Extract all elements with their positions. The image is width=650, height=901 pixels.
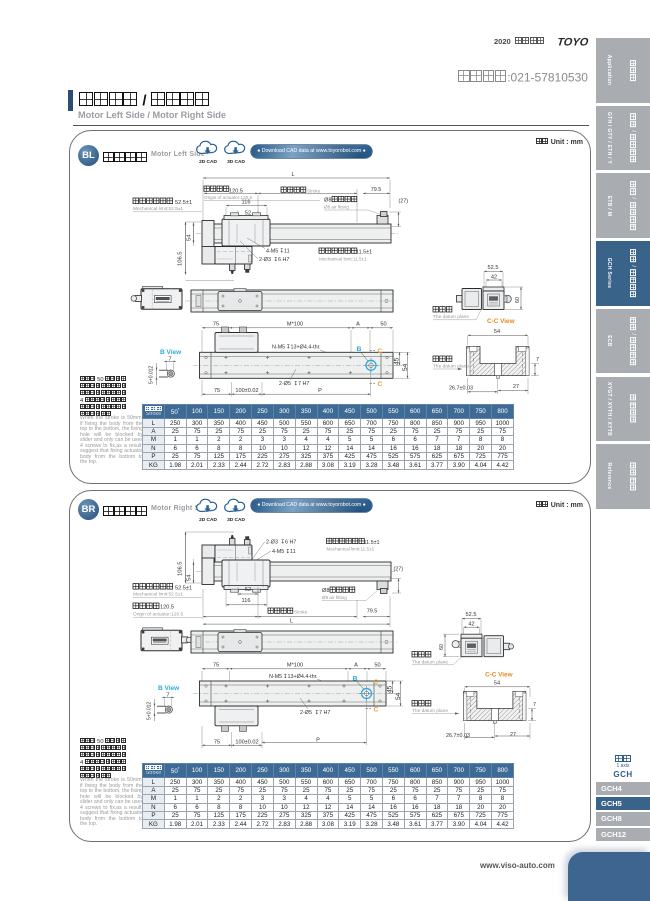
svg-text:The datum plane: The datum plane — [412, 708, 448, 714]
svg-text:2-Ø5: 2-Ø5 — [279, 381, 291, 387]
svg-text:Ø8: Ø8 — [322, 588, 329, 594]
svg-text:C-C View: C-C View — [485, 672, 513, 679]
svg-text:54: 54 — [395, 692, 402, 700]
svg-text:B: B — [357, 346, 362, 353]
svg-text:(27): (27) — [399, 199, 409, 205]
svg-text:26.7±0.03: 26.7±0.03 — [446, 733, 470, 739]
svg-text:The datum plane: The datum plane — [412, 659, 448, 665]
svg-text:C: C — [374, 707, 379, 714]
svg-text:Mechanical limit:11.5±1: Mechanical limit:11.5±1 — [319, 257, 367, 262]
svg-text:C: C — [374, 679, 379, 686]
svg-text:2-Ø3: 2-Ø3 — [259, 257, 271, 263]
svg-text:45: 45 — [394, 357, 401, 365]
svg-text:Ø8 air fitting: Ø8 air fitting — [322, 595, 347, 600]
svg-text:↧7 H7: ↧7 H7 — [294, 381, 310, 387]
svg-text:7: 7 — [533, 702, 536, 708]
svg-text:↧7 H7: ↧7 H7 — [315, 710, 331, 716]
svg-text:B View: B View — [158, 685, 180, 692]
svg-text:116: 116 — [242, 200, 251, 206]
svg-text:↧11: ↧11 — [280, 249, 290, 255]
svg-text:79.5: 79.5 — [371, 187, 382, 193]
svg-text:100±0.02: 100±0.02 — [235, 739, 258, 745]
svg-text:54: 54 — [494, 329, 500, 335]
svg-text:5+0.012: 5+0.012 — [147, 702, 153, 720]
svg-text:52.5: 52.5 — [466, 612, 477, 618]
svg-text:54: 54 — [187, 574, 193, 581]
svg-text:52: 52 — [245, 587, 251, 593]
svg-text:79.5: 79.5 — [367, 609, 378, 615]
svg-text:↧11: ↧11 — [286, 549, 296, 555]
svg-text:↧13+Ø4.4-thr.: ↧13+Ø4.4-thr. — [283, 674, 318, 680]
svg-text:2-Ø3: 2-Ø3 — [266, 539, 278, 545]
svg-text:75: 75 — [214, 388, 220, 394]
svg-text:Mechanical limit:52.5±1: Mechanical limit:52.5±1 — [133, 591, 183, 597]
svg-text:A: A — [354, 662, 358, 668]
svg-text:75: 75 — [213, 321, 219, 327]
svg-text:52.5±1: 52.5±1 — [175, 200, 192, 206]
svg-text:Mechanical limit:11.5±1: Mechanical limit:11.5±1 — [327, 546, 375, 551]
svg-text:11.5±1: 11.5±1 — [364, 540, 380, 546]
svg-text:54: 54 — [402, 363, 409, 371]
svg-text:↧13+Ø4.4-thr.: ↧13+Ø4.4-thr. — [286, 345, 321, 351]
svg-text:42: 42 — [491, 274, 497, 280]
svg-text:M*100: M*100 — [287, 662, 303, 668]
svg-text:B View: B View — [160, 349, 182, 356]
svg-text:2-Ø5: 2-Ø5 — [300, 710, 312, 716]
svg-text:N-M5: N-M5 — [272, 345, 285, 351]
svg-text:Stroke: Stroke — [307, 189, 321, 194]
svg-text:27: 27 — [513, 384, 519, 390]
svg-text:42: 42 — [468, 622, 474, 628]
svg-text:75: 75 — [214, 739, 220, 745]
svg-text:26.7±0.03: 26.7±0.03 — [449, 385, 473, 391]
svg-text:120.5: 120.5 — [160, 605, 174, 611]
svg-text:↧6 H7: ↧6 H7 — [274, 257, 290, 263]
svg-text:The datum plane: The datum plane — [433, 314, 469, 320]
svg-text:11.5±1: 11.5±1 — [356, 250, 372, 256]
svg-text:N-M5: N-M5 — [269, 674, 282, 680]
svg-text:60: 60 — [515, 297, 521, 303]
svg-text:75: 75 — [213, 662, 219, 668]
svg-text:P: P — [318, 388, 322, 394]
svg-text:50: 50 — [380, 321, 386, 327]
svg-text:Origin of actuator:120.5: Origin of actuator:120.5 — [133, 611, 183, 617]
svg-text:M*100: M*100 — [287, 321, 303, 327]
svg-text:27: 27 — [510, 732, 516, 738]
svg-text:(27): (27) — [394, 566, 404, 572]
svg-text:Ø8 air fitting: Ø8 air fitting — [324, 205, 349, 210]
svg-text:C-C View: C-C View — [487, 318, 515, 325]
svg-text:52.5±1: 52.5±1 — [175, 586, 192, 592]
svg-text:Mechanical limit:52.5±1: Mechanical limit:52.5±1 — [133, 206, 183, 212]
svg-text:50: 50 — [374, 662, 380, 668]
svg-text:5+0.012: 5+0.012 — [149, 366, 155, 384]
svg-text:C: C — [378, 348, 383, 355]
svg-text:The datum plane: The datum plane — [433, 364, 469, 370]
svg-text:Ø8: Ø8 — [324, 197, 331, 203]
svg-text:100±0.02: 100±0.02 — [235, 388, 258, 394]
svg-text:106.5: 106.5 — [178, 561, 184, 576]
svg-text:4-M5: 4-M5 — [272, 549, 284, 555]
svg-text:A: A — [356, 321, 360, 327]
svg-text:L: L — [290, 619, 293, 625]
svg-text:60: 60 — [439, 644, 445, 650]
svg-text:52.5: 52.5 — [488, 265, 499, 271]
svg-text:54: 54 — [187, 234, 193, 241]
svg-text:Stroke: Stroke — [294, 610, 308, 615]
svg-text:B: B — [353, 675, 358, 682]
svg-text:L: L — [291, 172, 294, 178]
svg-text:↧6 H7: ↧6 H7 — [281, 539, 297, 545]
svg-text:106.5: 106.5 — [178, 251, 184, 266]
svg-text:54: 54 — [494, 681, 500, 687]
svg-text:7: 7 — [536, 357, 539, 363]
svg-text:4-M5: 4-M5 — [266, 249, 278, 255]
svg-text:116: 116 — [242, 598, 251, 604]
svg-text:C: C — [378, 381, 383, 388]
svg-text:45: 45 — [387, 685, 394, 693]
